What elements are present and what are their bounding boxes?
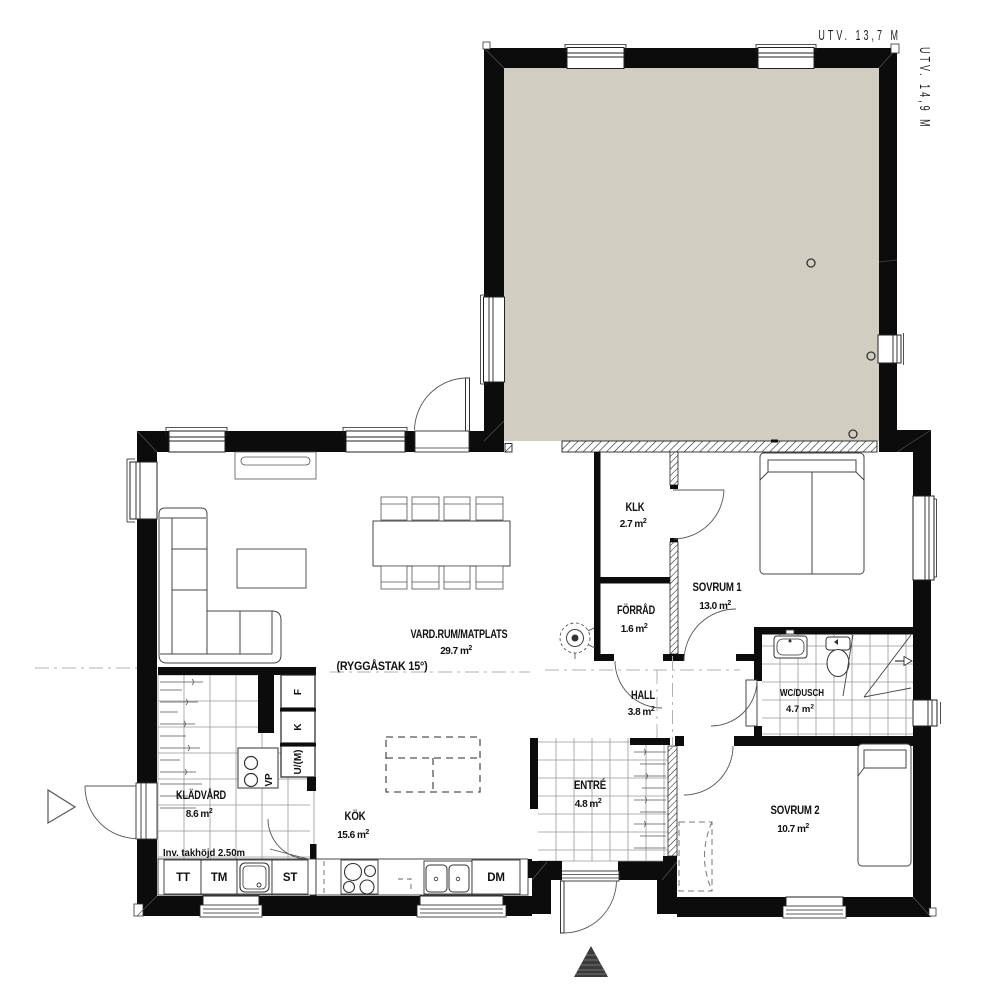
svg-text:15.6 m2: 15.6 m2	[337, 829, 369, 841]
svg-text:TT: TT	[176, 872, 190, 884]
svg-text:29.7 m2: 29.7 m2	[440, 645, 472, 657]
svg-text:KÖK: KÖK	[345, 810, 367, 823]
svg-text:10.7 m2: 10.7 m2	[777, 823, 809, 835]
svg-text:4.8 m2: 4.8 m2	[575, 798, 602, 810]
svg-text:UTV. 13,7 M: UTV. 13,7 M	[818, 27, 901, 44]
svg-text:3.8 m2: 3.8 m2	[628, 706, 655, 718]
svg-text:WC/DUSCH: WC/DUSCH	[780, 687, 824, 699]
svg-text:ST: ST	[283, 872, 297, 884]
svg-text:4.7 m2: 4.7 m2	[786, 704, 814, 716]
svg-text:ENTRÉ: ENTRÉ	[574, 779, 606, 792]
svg-text:KLK: KLK	[626, 502, 646, 514]
svg-text:DM: DM	[487, 872, 505, 884]
svg-text:UTV. 14,9 M: UTV. 14,9 M	[916, 47, 933, 130]
svg-text:8.6 m2: 8.6 m2	[186, 808, 213, 820]
svg-text:HALL: HALL	[631, 690, 655, 702]
svg-text:1.6 m2: 1.6 m2	[621, 623, 648, 635]
svg-text:K: K	[293, 723, 304, 731]
svg-text:Inv. takhöjd 2.50m: Inv. takhöjd 2.50m	[163, 847, 245, 859]
svg-text:TM: TM	[211, 872, 227, 884]
svg-text:VP: VP	[264, 773, 275, 787]
svg-text:SOVRUM 1: SOVRUM 1	[693, 582, 743, 594]
svg-text:SOVRUM 2: SOVRUM 2	[771, 805, 820, 817]
svg-text:F: F	[293, 689, 304, 695]
svg-text:FÖRRÅD: FÖRRÅD	[617, 604, 655, 617]
svg-text:(RYGGÅSTAK 15°): (RYGGÅSTAK 15°)	[337, 660, 428, 673]
svg-text:2.7 m2: 2.7 m2	[620, 518, 647, 530]
svg-text:KLÄDVÅRD: KLÄDVÅRD	[176, 789, 226, 802]
svg-text:13.0 m2: 13.0 m2	[699, 600, 731, 612]
svg-text:U/(M): U/(M)	[293, 750, 304, 775]
svg-text:VARD.RUM/MATPLATS: VARD.RUM/MATPLATS	[411, 629, 508, 641]
